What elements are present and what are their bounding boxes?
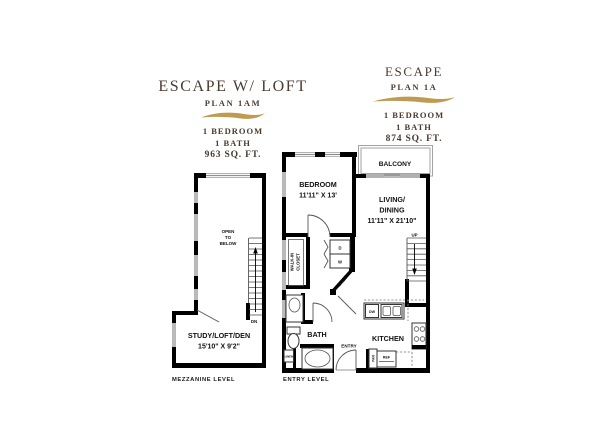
entry-door	[336, 350, 356, 370]
walk-in-closet-label: WALK-IN	[290, 253, 295, 271]
vanity	[286, 295, 303, 322]
entry-level-caption: ENTRY LEVEL	[283, 377, 329, 383]
stair-direction-arrow-icon	[253, 247, 258, 312]
balcony-slider-door	[384, 174, 400, 177]
bifold-door-icon	[324, 254, 328, 268]
pantry-label: PAN	[372, 355, 376, 362]
bath-label: BATH	[307, 330, 326, 339]
bedroom-door	[308, 215, 330, 237]
kitchen-label: KITCHEN	[372, 334, 404, 343]
bathtub	[302, 348, 333, 369]
open-to-below-label: OPEN	[222, 229, 235, 234]
mezzanine-level-caption: MEZZANINE LEVEL	[172, 377, 235, 383]
toilet-tank	[287, 327, 300, 334]
floorplan-drawing: OPEN TO BELOW STUDY/LOFT/DEN 15'10" X 9'…	[0, 0, 600, 441]
open-to-below-label: BELOW	[220, 241, 238, 246]
washer-label: W	[338, 260, 342, 265]
study-loft-den-label: STUDY/LOFT/DEN	[188, 331, 250, 340]
linen-label: LINEN	[337, 276, 348, 287]
dryer-label: D	[338, 246, 341, 251]
bath-door	[313, 303, 332, 322]
stairs-down-label: DN	[251, 319, 257, 324]
left-plan-mezzanine: OPEN TO BELOW STUDY/LOFT/DEN 15'10" X 9'…	[172, 173, 266, 383]
left-plan-stairs	[249, 238, 263, 315]
walk-in-closet: WALK-IN CLOSET	[289, 240, 304, 286]
bifold-door-icon	[324, 240, 328, 254]
range-handle	[412, 345, 426, 349]
bedroom-dimension: 11'11" X 13'	[299, 193, 337, 200]
washer-dryer-stack: D W	[324, 240, 350, 268]
toilet-icon	[288, 334, 299, 349]
open-to-below-label: TO	[225, 235, 232, 240]
study-loft-den-dimension: 15'10" X 9'2"	[198, 344, 240, 351]
balcony-label: BALCONY	[379, 161, 412, 168]
entry-label: ENTRY	[341, 344, 356, 349]
living-dining-dimension: 11'11" X 21'10"	[368, 218, 417, 225]
living-dining-label: LIVING/	[379, 195, 405, 204]
floorplan-sheet: ESCAPE W/ LOFT PLAN 1AM 1 BEDROOM 1 BATH…	[0, 0, 600, 441]
dishwasher-label: DW	[369, 310, 376, 314]
linen-closet-diagonal: LINEN	[333, 271, 351, 291]
refrigerator-label: REF	[383, 356, 391, 360]
right-plan-entry-level: WALK-IN CLOSET D W LINEN	[282, 146, 433, 384]
stairs-up-label: UP	[411, 233, 417, 238]
ceiling-break-line	[197, 310, 219, 322]
hall-closet-door-line	[338, 296, 356, 314]
right-plan-stairs: UP	[407, 233, 426, 282]
left-plan-windows	[173, 174, 250, 347]
walk-in-closet-label: CLOSET	[296, 253, 301, 271]
bedroom-label: BEDROOM	[299, 180, 337, 189]
living-dining-label: DINING	[379, 206, 405, 215]
linen-small-label: LINEN	[285, 355, 293, 359]
